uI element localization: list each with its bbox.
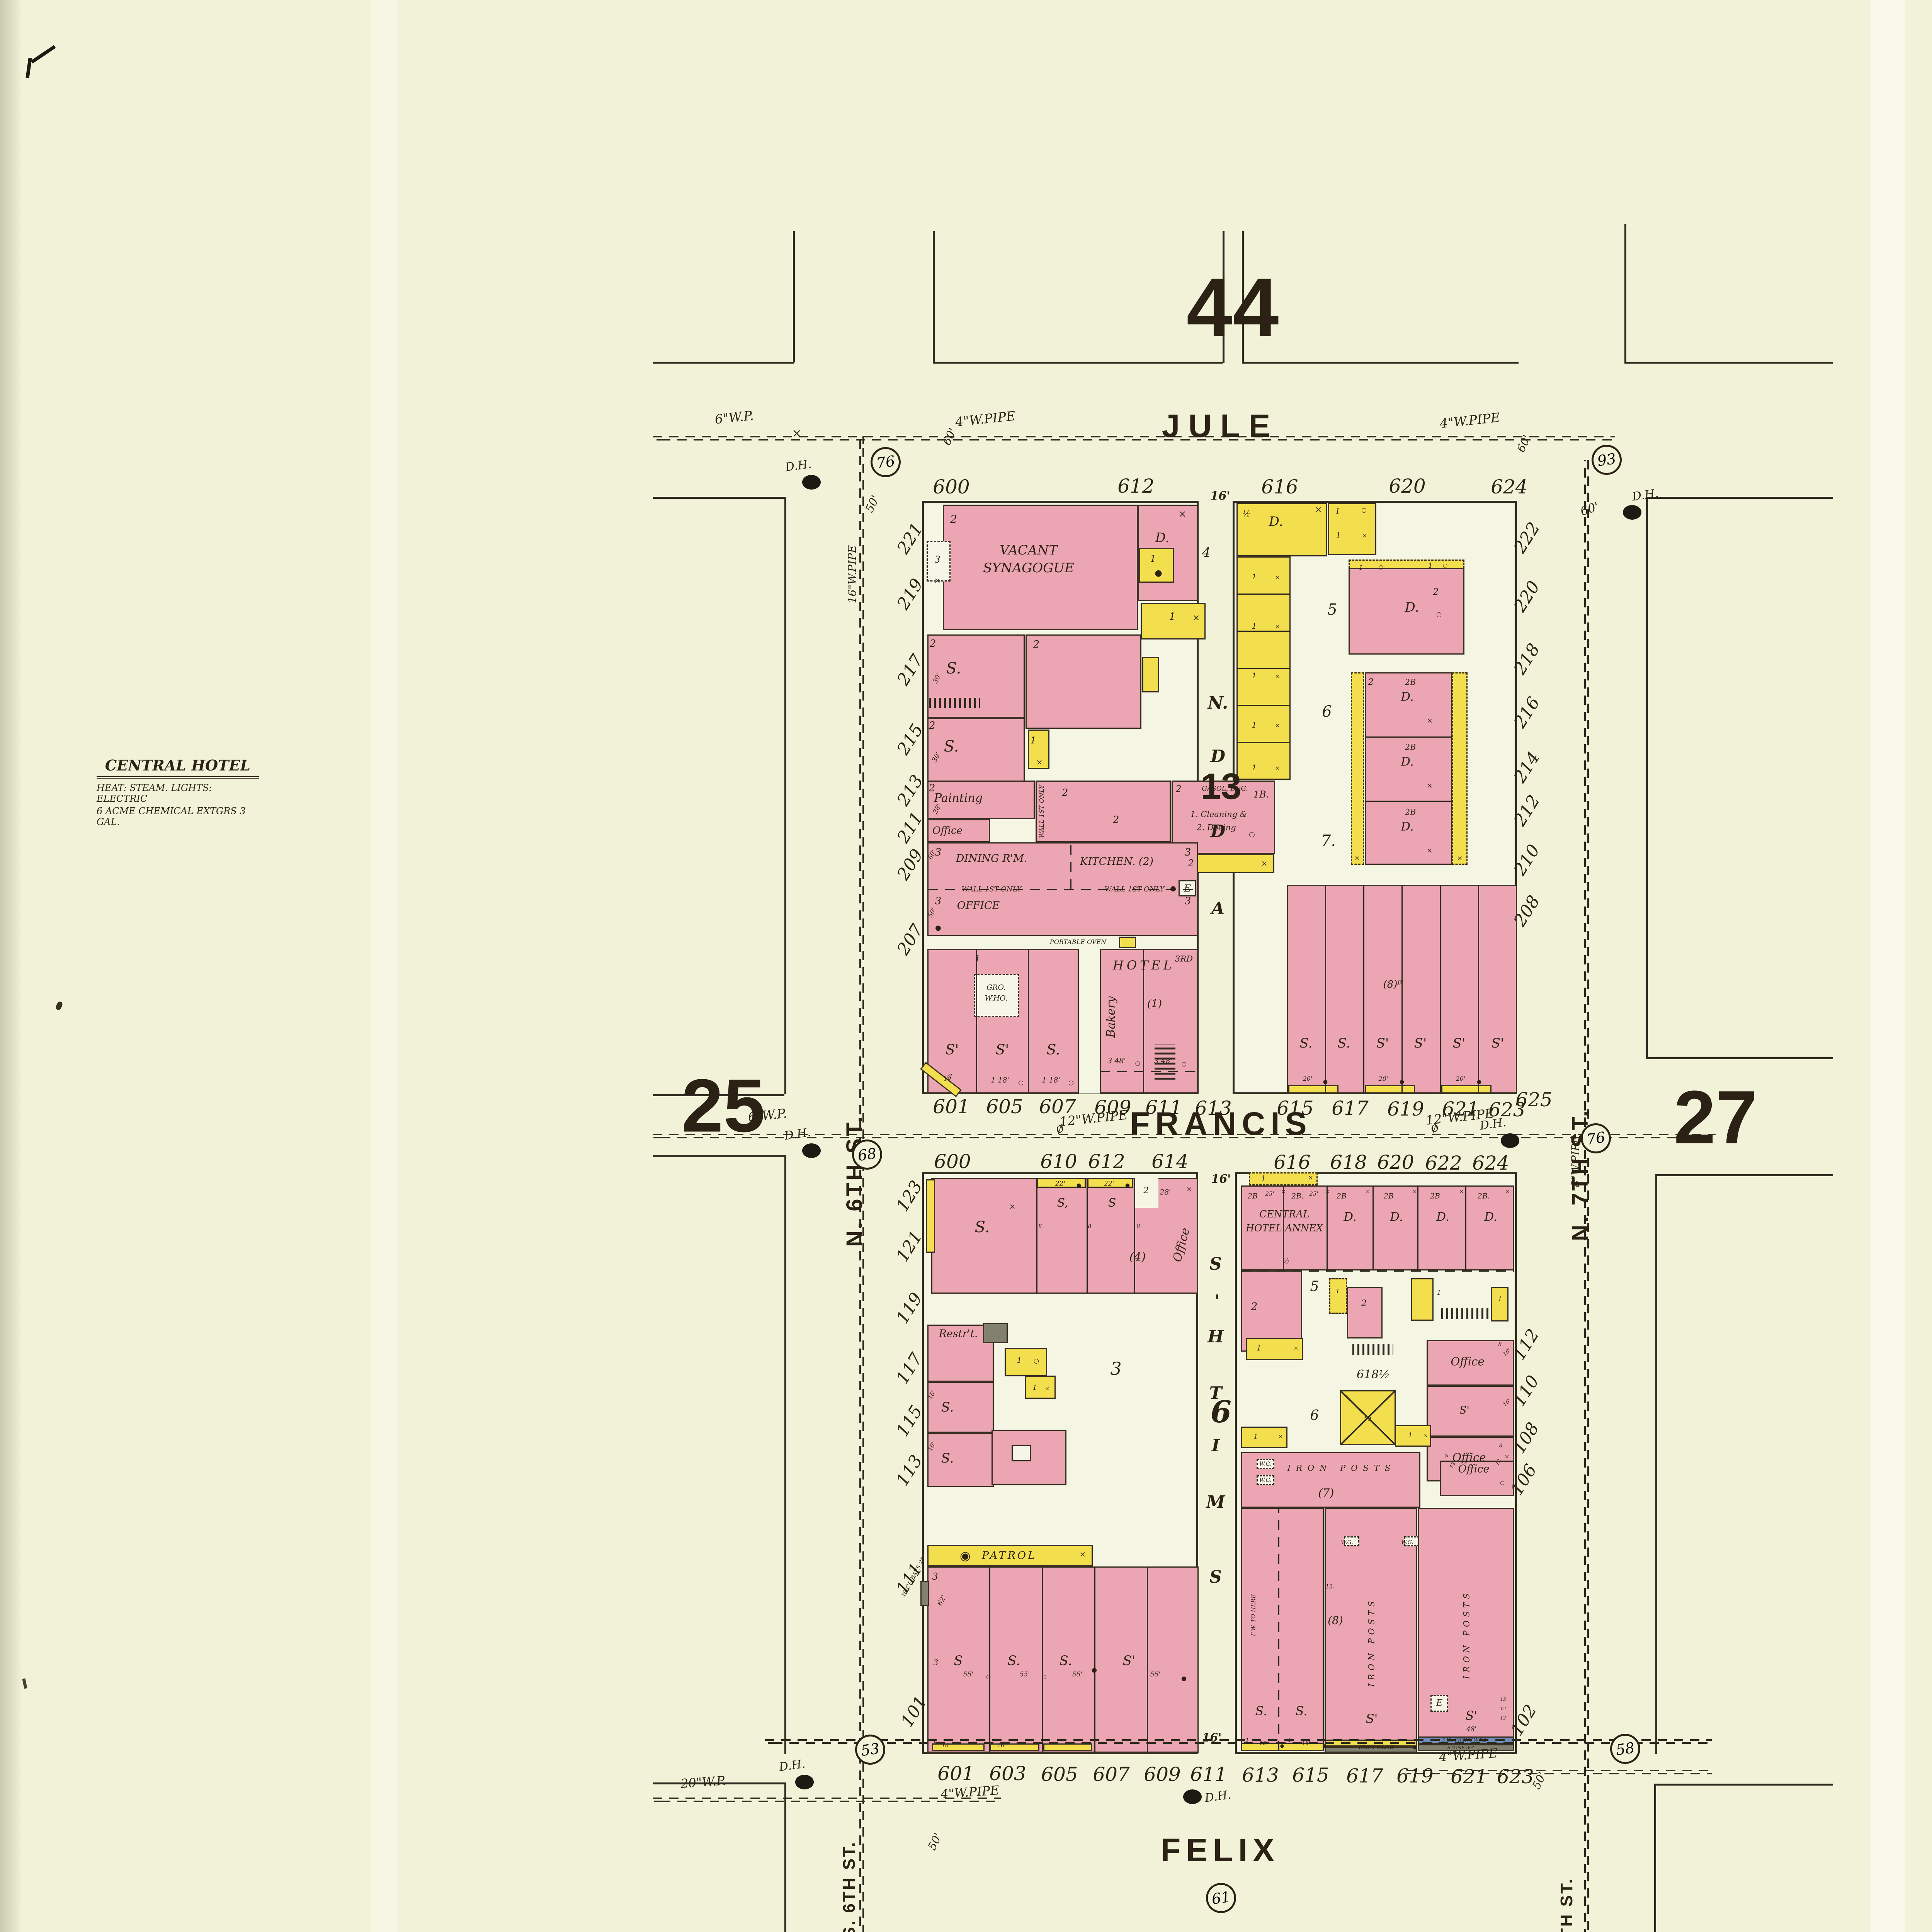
building xyxy=(1441,1085,1492,1094)
water-district-number: 76 xyxy=(875,452,896,472)
alley-letter: ' xyxy=(1214,1293,1219,1310)
house-number: 605 xyxy=(986,1097,1023,1116)
building-label: 2 xyxy=(1361,1299,1367,1308)
dh-dot xyxy=(1501,1133,1519,1148)
building-label: ○ xyxy=(1068,1080,1074,1086)
building-label: ○ xyxy=(1443,563,1447,568)
building-label: Office xyxy=(1452,1452,1486,1463)
house-number: 617 xyxy=(1332,1099,1368,1118)
building-label: 3 xyxy=(934,1658,939,1666)
street-line xyxy=(1624,362,1833,364)
house-number: 616 xyxy=(1274,1153,1310,1172)
building-label: ○ xyxy=(1361,507,1367,513)
street-line xyxy=(1465,1185,1466,1270)
building-label: ○ xyxy=(1135,1061,1140,1066)
building-label: × xyxy=(1281,1189,1286,1194)
house-number: 601 xyxy=(933,1097,969,1116)
building-label: 2B. xyxy=(1291,1193,1304,1200)
building xyxy=(1441,1308,1492,1319)
building-label: S xyxy=(954,1654,963,1667)
building-label: 1 xyxy=(1252,622,1257,630)
alley-letter: I xyxy=(1212,1437,1220,1454)
building-label: 2 xyxy=(1062,788,1068,798)
legend-line: 6 ACME CHEMICAL EXTGRS 3 GAL. xyxy=(97,806,259,827)
street-line xyxy=(1440,885,1441,1094)
building xyxy=(1351,672,1364,865)
building-label: ○ xyxy=(1500,1481,1504,1486)
street-name: S. 7TH ST. xyxy=(1558,1878,1575,1932)
building-label: × xyxy=(1505,1454,1510,1460)
street-line xyxy=(1365,801,1452,802)
building-label: ● xyxy=(1323,1079,1328,1085)
building-label: ○ xyxy=(1042,1674,1046,1680)
frontage-number: 219 xyxy=(895,576,926,613)
house-number: 614 xyxy=(1151,1152,1188,1171)
water-district-number: 93 xyxy=(1596,450,1617,469)
building-label: S' xyxy=(996,1043,1009,1057)
pipe-label: 4"W.PIPE xyxy=(940,1784,999,1800)
building-label: CENTRAL xyxy=(1259,1209,1309,1219)
building-label: 618½ xyxy=(1357,1369,1390,1381)
building-label: 55' xyxy=(1150,1672,1160,1678)
building-label: × xyxy=(1459,1189,1464,1194)
house-number: 616 xyxy=(1261,477,1298,497)
scan-streak xyxy=(1870,0,1905,1932)
building-label: 2 xyxy=(930,639,936,649)
building-label: F.W. TO HERE xyxy=(1251,1594,1257,1636)
building-label: ½ xyxy=(1282,1258,1289,1265)
building-label: S' xyxy=(1492,1037,1504,1050)
street-line xyxy=(1042,1566,1043,1753)
building-label: STONE 3ᴿᴰ xyxy=(1447,1745,1474,1750)
building-label: W.HO. xyxy=(985,995,1007,1002)
building-label: S. xyxy=(1296,1705,1308,1717)
house-number: 624 xyxy=(1472,1153,1509,1173)
alley-letter: M xyxy=(1206,1494,1225,1511)
frontage-number: 209 xyxy=(895,847,926,883)
frontage-number: 115 xyxy=(894,1403,925,1440)
house-number: 611 xyxy=(1190,1765,1227,1784)
building-label: PATROL xyxy=(982,1551,1037,1561)
building xyxy=(983,1323,1008,1343)
building xyxy=(1119,937,1136,948)
house-number: 620 xyxy=(1377,1153,1414,1172)
alley-letter: D xyxy=(1211,748,1225,765)
building-label: 2B xyxy=(1405,743,1416,752)
building-label: IRON POSTS xyxy=(1287,1464,1396,1473)
frontage-number: 215 xyxy=(895,721,926,758)
street-line xyxy=(1646,497,1648,1058)
building xyxy=(1329,1278,1347,1314)
building-label: 2 xyxy=(929,721,935,731)
building-label: 1 xyxy=(1288,1738,1292,1743)
street-line xyxy=(1624,224,1626,362)
building-label: ● xyxy=(1125,1183,1130,1188)
street-line xyxy=(1236,705,1291,706)
building-label: 8 xyxy=(1137,1224,1140,1229)
building-label: ● xyxy=(1181,1675,1187,1682)
building xyxy=(1079,949,1100,1094)
street-line xyxy=(1417,1185,1418,1270)
building-label: ● xyxy=(1155,569,1162,578)
building-label: × xyxy=(1427,847,1432,854)
street-line xyxy=(1654,1784,1656,1932)
building-label: DINING R'M. xyxy=(956,854,1027,864)
building-label: S. xyxy=(975,1219,990,1235)
dh-dot xyxy=(1623,505,1641,520)
building-label: ◉ xyxy=(960,1549,971,1562)
building-label: Painting xyxy=(934,793,983,804)
pipe-label: 50' xyxy=(926,1831,944,1852)
frontage-number: 123 xyxy=(894,1178,925,1215)
building xyxy=(1025,1376,1056,1399)
building-label: 1 xyxy=(1335,507,1340,515)
building-label: 1 xyxy=(932,1740,936,1746)
building-label: KITCHEN. (2) xyxy=(1080,857,1153,867)
building-label: 55' xyxy=(1020,1672,1030,1678)
building-label: 1 xyxy=(1254,1434,1258,1440)
pipe-label: 6"W.P. xyxy=(747,1107,787,1123)
house-number: 615 xyxy=(1277,1099,1313,1118)
building-label: × xyxy=(1261,859,1268,867)
building-label: 22' xyxy=(1104,1181,1114,1187)
street-line xyxy=(933,231,935,362)
pipe-label: 50' xyxy=(864,493,881,514)
building-label: 12 xyxy=(1500,1706,1506,1711)
pipe-label: 16"W.PIPE xyxy=(847,545,858,603)
house-number: 622 xyxy=(1425,1153,1462,1173)
building-label: 8 xyxy=(1499,1444,1502,1449)
building-label: × xyxy=(1009,1202,1016,1210)
frontage-number: 117 xyxy=(894,1350,925,1387)
building-label: 8 xyxy=(1088,1224,1092,1229)
building-label: 3 xyxy=(1185,896,1191,906)
street-name: JULE xyxy=(1162,410,1279,442)
frontage-number: 211 xyxy=(895,810,926,846)
building-label: 1 xyxy=(1017,1356,1022,1364)
paper-corner-mark xyxy=(26,58,32,78)
building xyxy=(1026,634,1141,729)
building-label: 16' xyxy=(942,1743,950,1748)
building-label: (4) xyxy=(1129,1252,1146,1263)
building-label: 28' xyxy=(1160,1189,1171,1196)
house-number: 618 xyxy=(1330,1153,1367,1172)
building-label: 4 xyxy=(1202,546,1211,559)
building-label: S. xyxy=(1047,1043,1060,1057)
building-label: HOTEL ANNEX xyxy=(1246,1223,1323,1233)
building-label: 2 xyxy=(950,514,957,525)
building-label: × xyxy=(1275,624,1280,630)
street-line xyxy=(653,362,794,364)
street-name: S. 6TH ST. xyxy=(841,1841,858,1932)
building-label: 2. Dyeing xyxy=(1197,824,1236,832)
house-number: 609 xyxy=(1094,1098,1131,1117)
building-label: × xyxy=(1186,1186,1192,1193)
building xyxy=(927,1433,994,1487)
water-district-circle: 61 xyxy=(1204,1881,1238,1915)
building-label: D. xyxy=(1401,821,1414,833)
street-line xyxy=(1028,949,1029,1094)
dh-label: D.H. xyxy=(1204,1789,1232,1804)
house-number: 619 xyxy=(1396,1766,1433,1786)
frontage-number: 119 xyxy=(894,1290,925,1327)
building-label: Office xyxy=(932,826,963,836)
building-label: 3 xyxy=(1185,847,1191,857)
building xyxy=(1347,1287,1383,1338)
building-label: 2 xyxy=(1368,678,1374,687)
house-number: 611 xyxy=(1145,1098,1182,1117)
house-number: 624 xyxy=(1491,477,1527,497)
legend-title: CENTRAL HOTEL xyxy=(97,757,259,779)
house-number: 625 xyxy=(1515,1090,1552,1109)
house-number: 613 xyxy=(1195,1099,1231,1118)
building-label: 2 xyxy=(1175,784,1181,794)
water-district-number: 61 xyxy=(1211,1888,1231,1908)
building xyxy=(1411,1278,1434,1321)
building xyxy=(1288,1085,1338,1094)
building-label: WALL 1ST ONLY xyxy=(1039,785,1045,838)
building-label: 8 xyxy=(1039,1224,1042,1229)
building-label: × xyxy=(1424,1434,1428,1439)
building-label: (1) xyxy=(1147,999,1162,1009)
street-line xyxy=(1646,1057,1833,1059)
street-line xyxy=(1036,1178,1037,1294)
building-label: ○ xyxy=(1379,565,1383,570)
legend-central-hotel: CENTRAL HOTEL HEAT: STEAM. LIGHTS: ELECT… xyxy=(97,757,259,827)
building-label: 1 xyxy=(1498,1296,1502,1302)
building-label: S xyxy=(1108,1197,1116,1209)
building-label: × xyxy=(1275,723,1280,729)
street-line xyxy=(1478,885,1479,1094)
building-label: S' xyxy=(1376,1037,1389,1050)
building-label: 1 xyxy=(1252,573,1257,580)
building-label: ½ xyxy=(1243,510,1250,518)
dh-label: D.H. xyxy=(784,458,812,473)
building-label: W.G. xyxy=(1259,1461,1272,1467)
building-label: × xyxy=(1457,855,1463,862)
dh-dot xyxy=(802,1143,821,1158)
house-number: 603 xyxy=(989,1764,1026,1783)
building-label: 1 xyxy=(1246,1738,1249,1743)
building-label: 2 xyxy=(1433,587,1439,597)
building-label: × xyxy=(1308,1175,1313,1181)
house-number: 601 xyxy=(937,1764,974,1783)
building-label: 20' xyxy=(1379,1076,1388,1082)
building-label: 25' xyxy=(1265,1191,1274,1197)
building-label: S' xyxy=(1466,1709,1478,1722)
house-number: 623 xyxy=(1497,1767,1534,1786)
building-label: × xyxy=(1505,1189,1510,1194)
frontage-number: 217 xyxy=(895,652,926,689)
building-label: ● xyxy=(935,925,941,932)
street-line xyxy=(784,1782,786,1932)
building-label: 1 xyxy=(1336,531,1341,539)
building-label: D. xyxy=(1344,1211,1357,1223)
building-label: 12 xyxy=(1500,1716,1506,1720)
building-label: Office xyxy=(1458,1464,1490,1475)
building-label: 16' xyxy=(1259,1741,1268,1746)
building-label: PORTABLE OVEN xyxy=(1050,939,1106,945)
dh-label: D.H. xyxy=(1631,488,1659,503)
street-line xyxy=(1236,668,1291,669)
block-number: 25 xyxy=(682,1068,765,1144)
pipe-label: 6"W.P. xyxy=(714,409,754,425)
building-label: 1 xyxy=(1437,1290,1441,1296)
building-label: 2B xyxy=(1430,1193,1440,1200)
street-line xyxy=(1100,1071,1198,1072)
street-name: N. 6TH ST. xyxy=(844,1114,866,1247)
building-label: IRON POSTS xyxy=(1463,1590,1471,1679)
street-line xyxy=(1236,742,1291,743)
building-label: × xyxy=(934,577,941,584)
dh-dot xyxy=(795,1775,814,1789)
building-label: 2B xyxy=(1384,1193,1394,1200)
building-label: 2B xyxy=(1337,1193,1347,1200)
building-label: ○ xyxy=(1436,611,1442,617)
building-label: S. xyxy=(941,1401,954,1414)
building-label: × xyxy=(1444,1453,1449,1459)
building-label: S' xyxy=(1459,1405,1469,1416)
building-label: 1 xyxy=(1032,1384,1037,1391)
building-label: D. xyxy=(1155,531,1170,544)
building-label: × xyxy=(1036,758,1043,766)
building xyxy=(920,1581,929,1606)
frontage-number: 113 xyxy=(894,1452,925,1489)
building-label: D. xyxy=(1436,1211,1449,1223)
building-label: 1 xyxy=(1030,736,1036,745)
building-label: S, xyxy=(1057,1197,1068,1209)
street-line xyxy=(1094,1566,1095,1753)
building-label: 3 xyxy=(1110,1360,1121,1378)
alley-number: 16' xyxy=(1211,490,1230,502)
water-district-number: 68 xyxy=(857,1145,878,1164)
building-label: 55' xyxy=(963,1672,973,1678)
pipe-label: 4"W.PIPE xyxy=(1439,411,1501,430)
building-label: 3 48' xyxy=(1107,1058,1126,1065)
alley-number: 16' xyxy=(1211,1173,1231,1185)
building-label: W.G. xyxy=(1341,1540,1353,1545)
street-line xyxy=(1236,631,1291,632)
house-number: 613 xyxy=(1242,1765,1279,1785)
street-line xyxy=(653,497,784,499)
building-label: D. xyxy=(1269,515,1283,528)
building-label: 2 xyxy=(1113,815,1119,825)
building xyxy=(1005,1348,1047,1376)
street-line xyxy=(793,231,795,362)
building xyxy=(1036,781,1171,842)
house-number: 617 xyxy=(1346,1766,1383,1786)
building-label: ○ xyxy=(1018,1080,1024,1086)
building-label: (8) xyxy=(1328,1615,1343,1626)
building-label: 1. Cleaning & xyxy=(1190,811,1247,819)
street-line xyxy=(1278,1508,1279,1751)
building-label: 1 xyxy=(1428,562,1432,569)
building xyxy=(927,949,1079,1094)
building-label: 2 xyxy=(1251,1302,1257,1312)
building-label: IRON POSTS xyxy=(1368,1598,1376,1687)
building-label: 1 xyxy=(1169,612,1176,622)
building-label: × xyxy=(1427,718,1432,724)
building-label: VACANT xyxy=(1000,544,1058,557)
building-label: 3 IR. FRONT W.&2ᴮ xyxy=(1442,1738,1488,1742)
water-district-number: 58 xyxy=(1615,1739,1636,1759)
building xyxy=(1249,1172,1318,1185)
building-label: 6 xyxy=(1322,704,1332,719)
house-number: 607 xyxy=(1093,1765,1129,1784)
alley-letter: T xyxy=(1209,1385,1222,1402)
legend-line: HEAT: STEAM. LIGHTS: ELECTRIC xyxy=(97,782,259,804)
alley-letter: S xyxy=(1209,1569,1222,1586)
building-label: 2B xyxy=(1405,808,1416,816)
building-label: S. xyxy=(1060,1654,1072,1667)
building-label: ● xyxy=(1477,1079,1481,1085)
alley-letter: S xyxy=(1209,1256,1222,1273)
building-label: 2 xyxy=(1143,1187,1149,1195)
water-district-circle: 93 xyxy=(1590,443,1624,477)
building-label: S' xyxy=(946,1043,959,1057)
street-line xyxy=(653,1155,784,1157)
building-label: S' xyxy=(1123,1654,1136,1667)
building-label: ● xyxy=(1092,1667,1097,1673)
building-label: ● xyxy=(1413,1745,1417,1750)
building-label: × xyxy=(1045,1386,1049,1391)
building-label: D. xyxy=(1484,1211,1497,1223)
paper-speck xyxy=(22,1678,27,1689)
building-label: Restr't. xyxy=(939,1329,978,1339)
street-line xyxy=(1654,1784,1833,1786)
building-label: 1 18' xyxy=(1042,1077,1060,1084)
building-label: D. xyxy=(1401,691,1414,703)
building-label: HOTEL xyxy=(1113,959,1175,971)
building-label: × xyxy=(1362,532,1367,539)
building-label: WALL 1ST ONLY xyxy=(962,886,1022,893)
building-label: 8 xyxy=(1498,1342,1502,1347)
building-label: × xyxy=(1412,1189,1417,1194)
building-label: S. xyxy=(941,1452,954,1465)
building-label: 2 xyxy=(929,783,935,793)
street-line xyxy=(933,362,1223,364)
alley-letter: H xyxy=(1207,1328,1224,1345)
alley-number: 16' xyxy=(1202,1732,1222,1744)
building-label: E xyxy=(1184,884,1191,893)
street-name: FELIX xyxy=(1161,1834,1280,1866)
water-district-circle: 58 xyxy=(1608,1732,1642,1766)
building xyxy=(1427,1386,1514,1437)
street-line xyxy=(1646,497,1833,499)
building-label: W.G. xyxy=(1259,1478,1272,1483)
building-label: × xyxy=(1315,506,1322,514)
building-label: 1 xyxy=(975,955,980,963)
building-label: × xyxy=(1294,1346,1298,1351)
building-label: S' xyxy=(1453,1037,1466,1050)
pipe-label: × xyxy=(792,428,801,439)
street-line xyxy=(1087,1178,1088,1294)
building-label: IRON CLAD xyxy=(1359,1745,1394,1750)
water-pipe-line xyxy=(765,1739,1712,1744)
street-line xyxy=(1365,736,1452,738)
building xyxy=(932,1743,985,1751)
building-label: 5 xyxy=(1327,602,1337,617)
building-label: 3 xyxy=(934,555,940,564)
building xyxy=(926,1179,935,1253)
building-label: × xyxy=(1427,782,1432,789)
house-number: 621 xyxy=(1451,1767,1487,1786)
building-label: 25' xyxy=(1309,1191,1318,1197)
building-label: S. xyxy=(1255,1705,1267,1717)
house-number: 615 xyxy=(1292,1765,1329,1785)
building-label: W.G. xyxy=(1401,1540,1413,1545)
street-line xyxy=(1372,1185,1374,1270)
